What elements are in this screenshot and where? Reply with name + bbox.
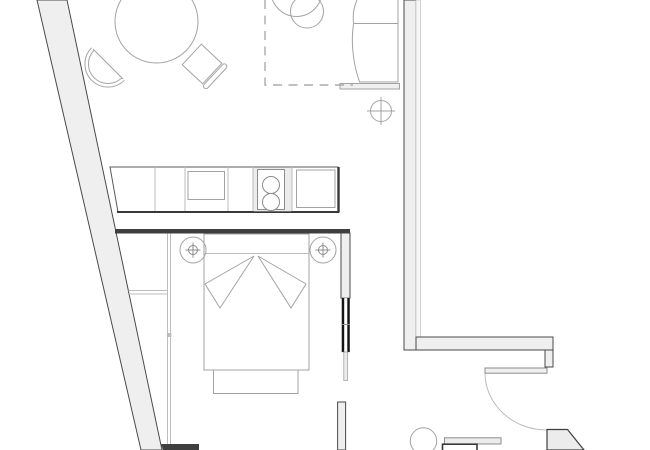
bathroom [410,428,584,450]
appliance-square [297,170,336,208]
pocket-door-leaf [344,352,348,381]
bedroom-top-wall [115,229,350,234]
entry-door [485,368,547,430]
horizontal-wall [416,337,553,350]
tub-chair-back-inner [88,50,121,83]
floor-plan-canvas [0,0,650,450]
vanity-counter [445,438,502,444]
sink-basin [188,172,225,200]
burner-top [263,177,280,194]
wall-return-shoe [547,430,584,450]
tub-chair [85,48,124,87]
lower-partition-wall [338,402,346,450]
floor-plan-page [0,0,650,450]
door-swing-arc [485,373,547,430]
side-chair [181,43,228,90]
swing-door-leaf [485,368,547,373]
bedroom [129,234,337,445]
tub-chair-seat-edge [93,49,123,79]
round-dining-table [115,0,198,63]
bottom-wall-stub [161,444,199,450]
ceiling-light-symbol [367,97,395,125]
toilet [410,428,436,450]
kitchen [110,167,339,213]
closet-tick [167,333,172,337]
bedroom-right-wall [341,233,350,298]
pocket-door [342,298,350,381]
side-chair-seat [182,44,222,84]
armchair-body [352,0,398,82]
living-dining [85,0,400,90]
plant-large-circle [271,0,322,17]
side-chair-back-rail [202,63,227,90]
burner-bottom [263,194,280,211]
foot-bench [214,370,299,394]
armchair-front-rail [340,84,400,90]
right-wall [404,0,416,350]
armchair [340,0,400,89]
vanity-cabinet [443,444,478,450]
right-wall-facing [416,0,421,338]
door-jamb-return [545,350,553,367]
diagonal-wall [37,0,162,450]
